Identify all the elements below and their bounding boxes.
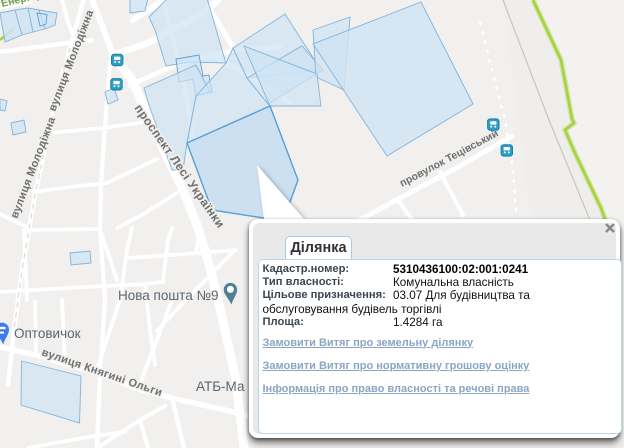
svg-text:Оптовичок: Оптовичок bbox=[14, 326, 81, 341]
svg-text:Нова пошта №9: Нова пошта №9 bbox=[118, 288, 218, 303]
svg-text:АТБ-Ма: АТБ-Ма bbox=[196, 379, 245, 394]
